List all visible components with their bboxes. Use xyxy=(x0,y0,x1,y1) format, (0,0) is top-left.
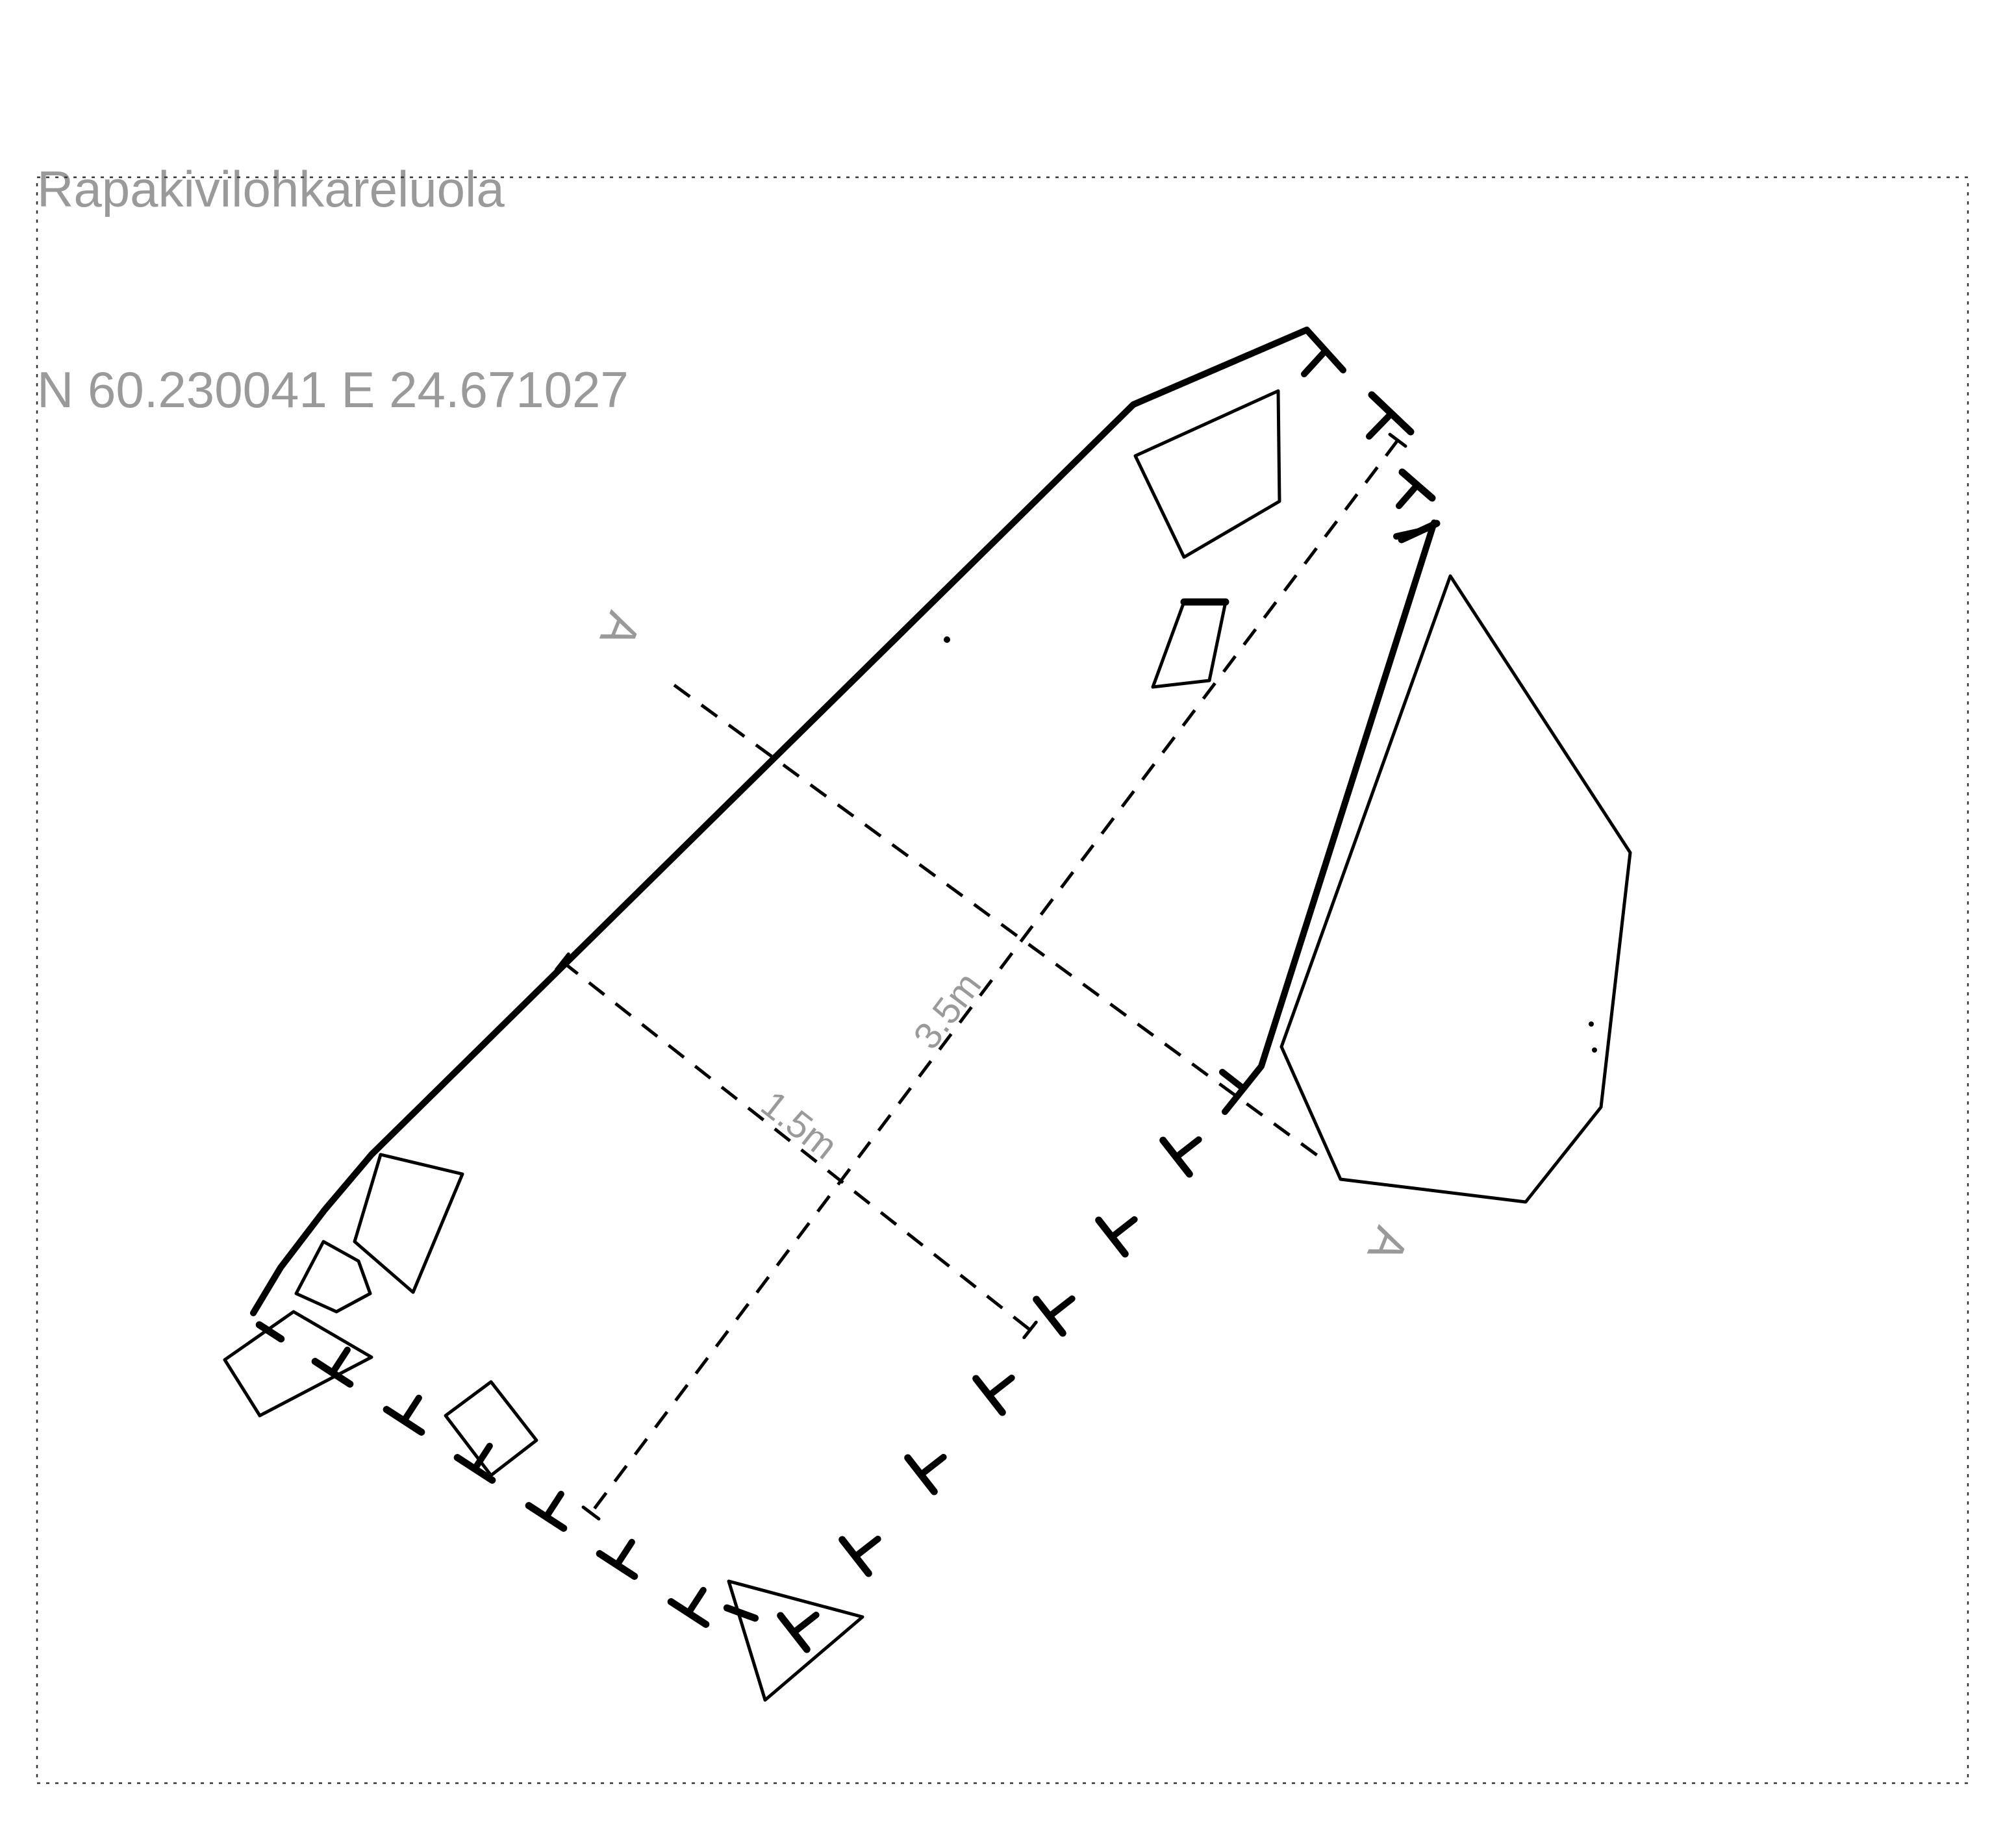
cave-map: AA3.5m1.5m xyxy=(0,0,2016,1839)
boulder-top-small xyxy=(1153,602,1226,687)
map-border xyxy=(37,177,1968,1783)
arc-tick-stem-1 xyxy=(1399,485,1417,506)
map-dot-1 xyxy=(1589,1021,1594,1027)
measure-endtick-3.5m-1 xyxy=(583,1507,599,1519)
dripline-right-entrance-stem-6 xyxy=(794,1615,816,1633)
section-label-A-0: A xyxy=(590,605,652,655)
boulder-right-large xyxy=(1281,576,1630,1202)
boulder-sw-2 xyxy=(296,1242,370,1312)
section-line-A-A xyxy=(674,685,1320,1157)
measure-line-3.5m xyxy=(591,440,1398,1513)
dripline-right-entrance-stem-2 xyxy=(1050,1299,1072,1316)
map-dot-0 xyxy=(944,636,950,643)
wall-right xyxy=(1225,523,1434,1112)
section-label-A-1: A xyxy=(1357,1220,1420,1270)
boulder-top-large xyxy=(1135,391,1279,557)
boulder-sw-1 xyxy=(355,1155,462,1292)
dripline-left-entrance-stem-6 xyxy=(688,1590,703,1613)
dripline-right-entrance-stem-1 xyxy=(1112,1220,1135,1237)
cave-map-svg: AA3.5m1.5m xyxy=(0,0,2016,1839)
apex-tick-stem xyxy=(1304,351,1325,374)
dripline-right-entrance-stem-5 xyxy=(855,1539,878,1557)
measure-label-1.5m: 1.5m xyxy=(753,1082,846,1168)
measure-endtick-3.5m-0 xyxy=(1390,434,1405,446)
dripline-right-entrance-stem-0 xyxy=(1176,1140,1199,1157)
right-wall-end-stem xyxy=(1222,1072,1243,1088)
boulder-sw-3 xyxy=(225,1312,372,1416)
dripline-left-entrance-stem-4 xyxy=(546,1494,561,1517)
dripline-left-entrance-stem-5 xyxy=(617,1542,632,1565)
dripline-right-entrance-stem-4 xyxy=(921,1457,944,1475)
arc-tick-stem-0 xyxy=(1369,414,1391,436)
screenshot-root: Rapakivilohkareluola N 60.230041 E 24.67… xyxy=(0,0,2016,1839)
dripline-right-entrance-stem-3 xyxy=(989,1378,1012,1395)
map-dot-2 xyxy=(1592,1047,1597,1053)
dripline-left-entrance-stem-2 xyxy=(404,1398,419,1421)
measure-label-3.5m: 3.5m xyxy=(905,964,990,1057)
